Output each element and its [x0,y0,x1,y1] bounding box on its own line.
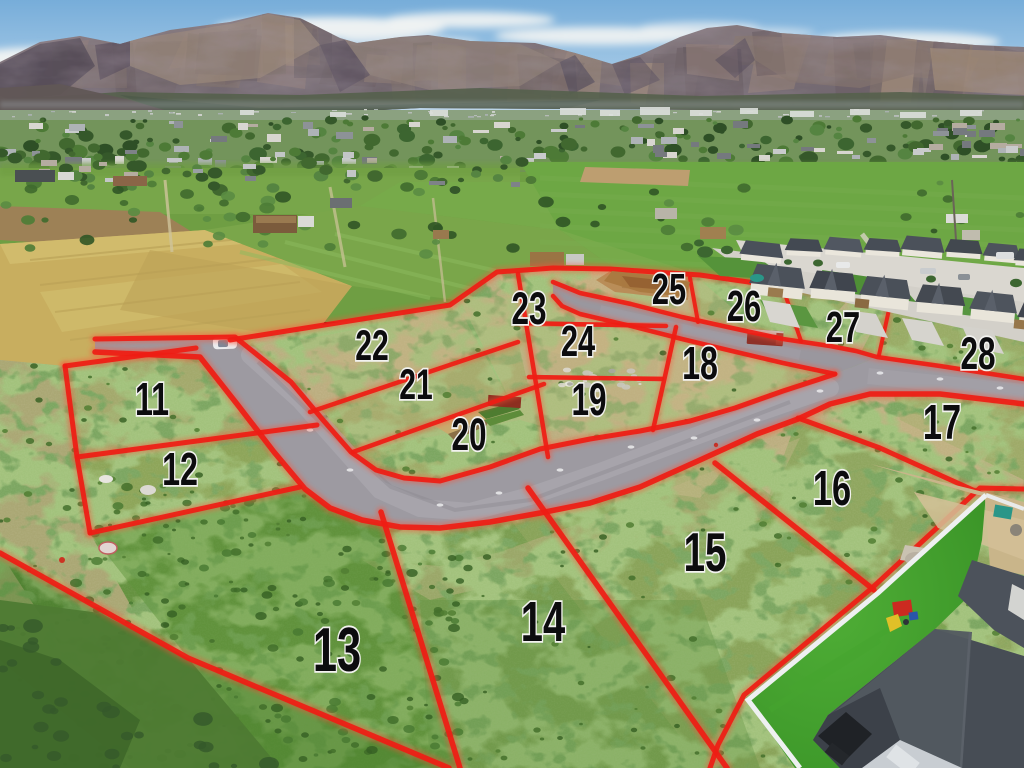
svg-text:23: 23 [511,285,546,335]
svg-text:11: 11 [135,374,169,425]
svg-text:20: 20 [451,411,486,461]
svg-text:24: 24 [561,318,595,367]
svg-text:25: 25 [652,266,686,315]
svg-text:13: 13 [313,617,361,685]
svg-text:22: 22 [355,321,388,370]
svg-text:17: 17 [923,395,961,449]
svg-text:21: 21 [399,360,432,409]
svg-text:27: 27 [826,304,860,353]
svg-text:15: 15 [684,522,727,583]
svg-text:14: 14 [521,590,566,654]
svg-text:26: 26 [727,283,761,332]
svg-text:18: 18 [682,338,718,389]
svg-text:19: 19 [571,376,606,426]
svg-text:16: 16 [813,461,851,515]
svg-text:28: 28 [960,330,995,380]
svg-text:12: 12 [162,444,198,495]
